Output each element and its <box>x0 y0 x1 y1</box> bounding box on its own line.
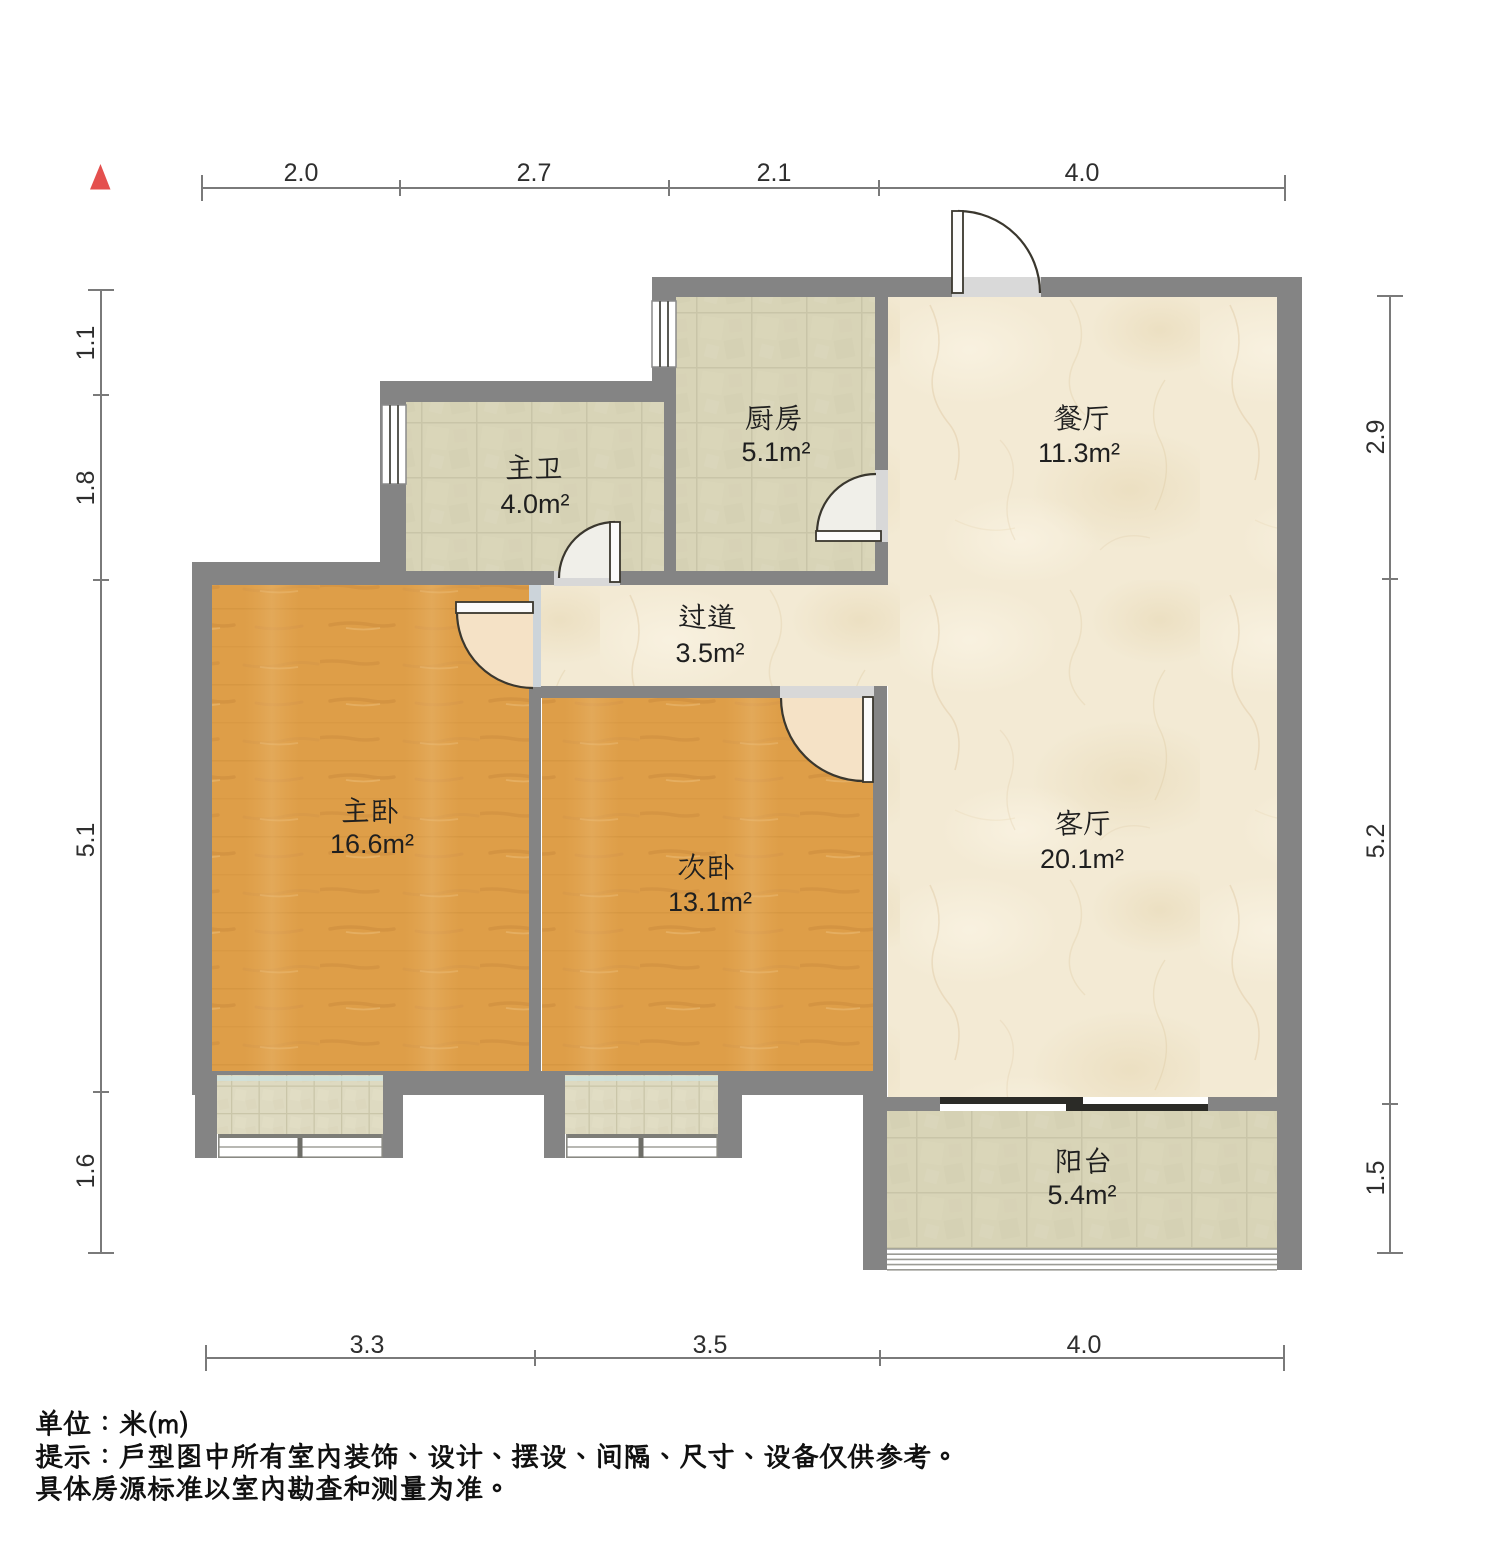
svg-text:5.1m²: 5.1m² <box>741 437 810 467</box>
svg-text:20.1m²: 20.1m² <box>1040 844 1124 874</box>
svg-text:5.4m²: 5.4m² <box>1047 1180 1116 1210</box>
svg-text:1.1: 1.1 <box>72 326 100 361</box>
svg-text:4.0m²: 4.0m² <box>500 489 569 519</box>
svg-text:5.1: 5.1 <box>72 823 100 858</box>
svg-text:2.7: 2.7 <box>517 159 552 187</box>
svg-text:3.3: 3.3 <box>350 1331 385 1359</box>
svg-text:16.6m²: 16.6m² <box>330 829 414 859</box>
svg-text:2.9: 2.9 <box>1362 420 1390 455</box>
svg-text:1.6: 1.6 <box>72 1154 100 1189</box>
svg-text:1.8: 1.8 <box>72 471 100 506</box>
svg-text:4.0: 4.0 <box>1065 159 1100 187</box>
svg-text:13.1m²: 13.1m² <box>668 887 752 917</box>
svg-text:3.5: 3.5 <box>693 1331 728 1359</box>
svg-text:1.5: 1.5 <box>1362 1161 1390 1196</box>
svg-text:2.1: 2.1 <box>757 159 792 187</box>
svg-text:11.3m²: 11.3m² <box>1038 438 1120 468</box>
svg-text:5.2: 5.2 <box>1362 824 1390 859</box>
svg-text:2.0: 2.0 <box>284 159 319 187</box>
svg-text:3.5m²: 3.5m² <box>675 638 744 668</box>
svg-text:4.0: 4.0 <box>1067 1331 1102 1359</box>
